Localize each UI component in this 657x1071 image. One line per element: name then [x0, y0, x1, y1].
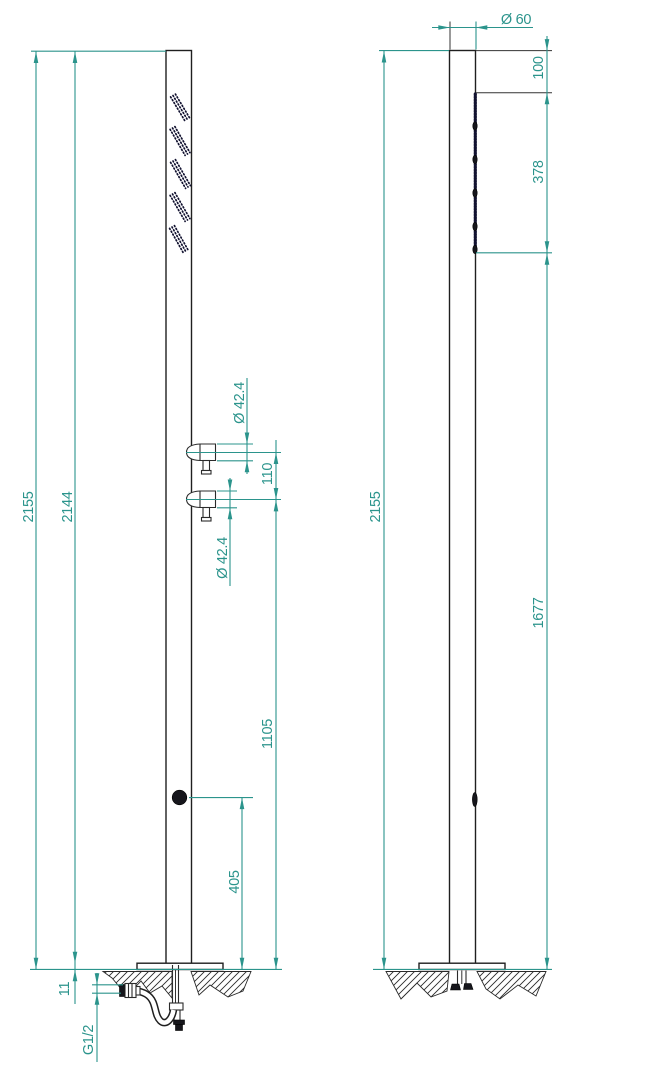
side-base-plate [419, 963, 505, 969]
side-drain-knob [472, 793, 477, 807]
dim-side-total-height: 2155 [368, 491, 384, 522]
front-drain-knob [172, 790, 187, 805]
nozzle-row [171, 160, 191, 189]
nozzle-row [170, 226, 189, 254]
dim-front-handle-spacing: 110 [260, 463, 276, 485]
nozzle-row [170, 127, 190, 156]
dim-front-total-height: 2155 [21, 491, 37, 522]
dim-side-nozzle-bottom-height: 1677 [531, 597, 547, 628]
dim-front-plate-thickness: 11 [57, 982, 73, 997]
dim-front-handles-height: 1105 [260, 719, 276, 749]
dimensions-side: Ø 60 100 378 1677 2155 [368, 12, 552, 969]
front-base-plate [137, 963, 223, 969]
front-ground-hatch-right [191, 972, 251, 998]
drawing-svg: 2155 2144 11 G1/2 Ø 42.4 110 Ø 42.4 1105… [0, 0, 657, 1071]
side-column-outline [450, 51, 476, 964]
side-underfloor-stub [451, 971, 474, 991]
dim-front-lower-handle-diameter: Ø 42.4 [215, 537, 231, 579]
dim-side-column-diameter: Ø 60 [501, 12, 531, 28]
pipe-end-fitting [174, 1020, 185, 1025]
side-ground-hatch-right [477, 972, 546, 1000]
front-nozzle-rows [170, 94, 191, 253]
side-ground-hatch-left [386, 972, 449, 1000]
dimensions-front: 2155 2144 11 G1/2 Ø 42.4 110 Ø 42.4 1105… [21, 51, 282, 1062]
nozzle-row [170, 193, 190, 222]
dim-front-inlet-thread: G1/2 [81, 1025, 97, 1055]
pipe-union-nut [170, 1003, 184, 1010]
nozzle-row [171, 94, 190, 120]
dim-side-head-top-offset: 100 [531, 56, 547, 80]
dim-front-height-to-plate: 2144 [60, 491, 76, 522]
side-view [386, 22, 552, 1000]
dim-front-upper-handle-diameter: Ø 42.4 [232, 382, 248, 424]
dim-side-nozzle-strip-length: 378 [531, 160, 547, 184]
technical-drawing-shower-column: 2155 2144 11 G1/2 Ø 42.4 110 Ø 42.4 1105… [0, 0, 657, 1071]
dim-front-knob-height: 405 [227, 870, 243, 894]
